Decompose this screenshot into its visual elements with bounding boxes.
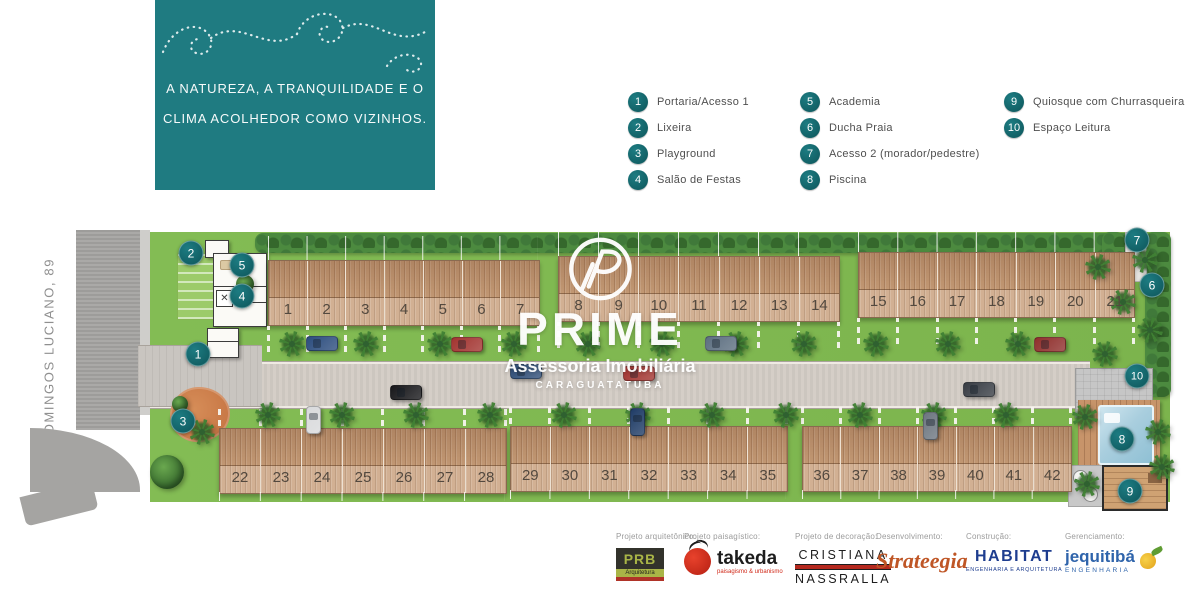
- unit-number: 17: [949, 293, 966, 310]
- car-windshield: [633, 415, 642, 422]
- palm-tree-icon: [863, 331, 889, 357]
- unit-number: 26: [396, 469, 413, 486]
- palm-tree-icon: [773, 402, 799, 428]
- unit-cell: 22: [220, 429, 260, 493]
- takeda-fruit-icon: [684, 548, 711, 575]
- unit-number: 24: [314, 469, 331, 486]
- takeda-name: takeda: [717, 549, 783, 568]
- partner-jequitiba: Gerenciamento: jequitibá ENGENHARIA: [1065, 532, 1156, 574]
- unit-cell: 26: [383, 429, 424, 493]
- prime-monogram-icon: [565, 234, 635, 304]
- car-icon: [1034, 337, 1066, 352]
- legend-number-badge: 6: [800, 118, 820, 138]
- partner-role: Desenvolvimento:: [876, 532, 968, 541]
- palm-tree-icon: [427, 331, 453, 357]
- parking-mark: [218, 404, 221, 426]
- unit-cell: 13: [759, 257, 799, 321]
- map-marker-10: 10: [1125, 364, 1150, 389]
- unit-cell: 36: [803, 427, 840, 491]
- parking-mark: [1132, 318, 1135, 344]
- unit-number: 22: [232, 469, 249, 486]
- lot-divider-lines: [510, 490, 786, 499]
- map-marker-1: 1: [186, 342, 211, 367]
- legend-label: Quiosque com Churrasqueira: [1033, 96, 1184, 108]
- palm-tree-icon: [1085, 254, 1111, 280]
- unit-number: 3: [361, 301, 369, 318]
- palm-tree-icon: [1092, 341, 1118, 367]
- unit-cell: 2: [307, 261, 346, 325]
- unit-cell: 1: [269, 261, 307, 325]
- palm-tree-icon: [255, 402, 281, 428]
- unit-cell: 29: [511, 427, 550, 491]
- unit-number: 34: [720, 467, 737, 484]
- car-windshield: [1041, 340, 1049, 349]
- unit-number: 6: [477, 301, 485, 318]
- car-windshield: [458, 340, 466, 349]
- parking-mark: [588, 402, 591, 424]
- map-marker-3: 3: [171, 409, 196, 434]
- unit-cell: 27: [424, 429, 465, 493]
- legend-item: 2Lixeira: [628, 118, 749, 138]
- prb-red-bar: [616, 577, 664, 581]
- palm-tree-icon: [403, 402, 429, 428]
- legend-number-badge: 2: [628, 118, 648, 138]
- unit-number: 27: [437, 469, 454, 486]
- unit-cell: 37: [840, 427, 878, 491]
- car-windshield: [712, 339, 720, 348]
- unit-number: 19: [1028, 293, 1045, 310]
- parking-mark: [839, 402, 842, 424]
- unit-cell: 17: [937, 253, 976, 317]
- parking-mark: [746, 402, 749, 424]
- unit-number: 18: [988, 293, 1005, 310]
- unit-cell: 12: [719, 257, 759, 321]
- unit-number: 38: [890, 467, 907, 484]
- parking-mark: [344, 326, 347, 352]
- partner-role: Construção:: [966, 532, 1062, 541]
- unit-number: 32: [641, 467, 658, 484]
- legend-label: Academia: [829, 96, 880, 108]
- legend-item: 8Piscina: [800, 170, 980, 190]
- palm-tree-icon: [847, 402, 873, 428]
- unit-cell: 14: [799, 257, 839, 321]
- parking-mark: [857, 318, 860, 344]
- legend-column-1: 1Portaria/Acesso 12Lixeira3Playground4Sa…: [628, 92, 749, 190]
- unit-number: 33: [680, 467, 697, 484]
- tree-icon: [150, 455, 184, 489]
- unit-cell: 35: [747, 427, 787, 491]
- parking-mark: [667, 402, 670, 424]
- legend-number-badge: 8: [800, 170, 820, 190]
- unit-cell: 34: [708, 427, 748, 491]
- parking-mark: [381, 404, 384, 426]
- car-windshield: [313, 339, 321, 348]
- unit-number: 21: [1106, 293, 1123, 310]
- car-windshield: [309, 413, 318, 420]
- legend-label: Acesso 2 (morador/pedestre): [829, 148, 980, 160]
- unit-number: 35: [759, 467, 776, 484]
- parking-mark: [757, 322, 760, 348]
- car-icon: [306, 336, 338, 351]
- unit-block-5: 29303132333435: [510, 426, 788, 492]
- parking-mark: [509, 402, 512, 424]
- map-marker-7: 7: [1125, 228, 1150, 253]
- unit-number: 5: [439, 301, 447, 318]
- car-windshield: [397, 388, 405, 397]
- unit-number: 42: [1044, 467, 1061, 484]
- parking-mark: [463, 404, 466, 426]
- legend-item: 10Espaço Leitura: [1004, 118, 1184, 138]
- legend-column-2: 5Academia6Ducha Praia7Acesso 2 (morador/…: [800, 92, 980, 190]
- unit-cell: 33: [668, 427, 708, 491]
- parking-mark: [504, 404, 507, 426]
- car-windshield: [926, 419, 935, 426]
- legend-item: 4Salão de Festas: [628, 170, 749, 190]
- palm-tree-icon: [1137, 317, 1163, 343]
- watermark-brand: PRIME: [517, 306, 683, 352]
- prb-sub: Arquitetura: [616, 569, 664, 577]
- unit-cell: 4: [384, 261, 423, 325]
- palm-tree-icon: [993, 402, 1019, 428]
- partner-takeda: Projeto paisagístico: takeda paisagismo …: [684, 532, 783, 575]
- legend-number-badge: 4: [628, 170, 648, 190]
- car-icon: [451, 337, 483, 352]
- map-marker-5: 5: [230, 253, 255, 278]
- legend-item: 7Acesso 2 (morador/pedestre): [800, 144, 980, 164]
- jequitiba-name: jequitibá: [1065, 548, 1135, 565]
- unit-cell: 32: [629, 427, 669, 491]
- street-road: [76, 230, 140, 430]
- unit-number: 31: [601, 467, 618, 484]
- takeda-sub: paisagismo & urbanismo: [717, 569, 783, 575]
- partner-strateegia: Desenvolvimento: Strateegia: [876, 532, 968, 574]
- palm-tree-icon: [353, 331, 379, 357]
- palm-tree-icon: [279, 331, 305, 357]
- partner-role: Gerenciamento:: [1065, 532, 1156, 541]
- watermark-logo: PRIME Assessoria Imobiliária CARAGUATATU…: [504, 234, 695, 391]
- car-icon: [630, 408, 645, 436]
- unit-cell: 3: [345, 261, 384, 325]
- tagline-line2: CLIMA ACOLHEDOR COMO VIZINHOS.: [155, 104, 435, 134]
- unit-number: 41: [1005, 467, 1022, 484]
- legend-item: 1Portaria/Acesso 1: [628, 92, 749, 112]
- unit-cell: 19: [1016, 253, 1055, 317]
- map-marker-8: 8: [1110, 427, 1135, 452]
- legend-number-badge: 7: [800, 144, 820, 164]
- legend-number-badge: 1: [628, 92, 648, 112]
- parking-mark: [1031, 402, 1034, 424]
- car-icon: [390, 385, 422, 400]
- prb-logo: PRB Arquitetura: [616, 548, 664, 581]
- unit-number: 15: [870, 293, 887, 310]
- unit-cell: 6: [462, 261, 501, 325]
- car-icon: [705, 336, 737, 351]
- palm-tree-icon: [329, 402, 355, 428]
- palm-tree-icon: [1005, 331, 1031, 357]
- unit-cell: 15: [859, 253, 897, 317]
- legend-label: Ducha Praia: [829, 122, 893, 134]
- unit-number: 13: [771, 297, 788, 314]
- legend-column-3: 9Quiosque com Churrasqueira10Espaço Leit…: [1004, 92, 1184, 138]
- unit-number: 16: [909, 293, 926, 310]
- prb-name: PRB: [616, 551, 664, 567]
- palm-tree-icon: [551, 402, 577, 428]
- parking-mark: [421, 326, 424, 352]
- legend-label: Playground: [657, 148, 716, 160]
- unit-number: 30: [562, 467, 579, 484]
- palm-tree-icon: [791, 331, 817, 357]
- strateegia-name: Strateegia: [876, 548, 968, 574]
- car-icon: [923, 412, 938, 440]
- parking-mark: [896, 318, 899, 344]
- legend-label: Salão de Festas: [657, 174, 741, 186]
- lot-divider-lines: [268, 236, 538, 260]
- portaria-building: [207, 328, 239, 358]
- unit-cell: 5: [423, 261, 462, 325]
- legend-number-badge: 10: [1004, 118, 1024, 138]
- lot-divider-lines: [802, 490, 1070, 499]
- legend-item: 6Ducha Praia: [800, 118, 980, 138]
- jequitiba-sub: ENGENHARIA: [1065, 567, 1135, 574]
- legend-item: 3Playground: [628, 144, 749, 164]
- lot-divider-lines: [219, 492, 505, 501]
- unit-cell: 25: [342, 429, 383, 493]
- parking-mark: [837, 322, 840, 348]
- unit-number: 14: [811, 297, 828, 314]
- map-marker-2: 2: [179, 241, 204, 266]
- map-marker-4: 4: [230, 284, 255, 309]
- map-marker-6: 6: [1140, 273, 1165, 298]
- unit-cell: 41: [994, 427, 1032, 491]
- lot-divider-lines: [858, 228, 1133, 252]
- unit-cell: 28: [465, 429, 506, 493]
- partner-habitat: Construção: HABITAT ENGENHARIA E ARQUITE…: [966, 532, 1062, 573]
- legend-number-badge: 9: [1004, 92, 1024, 112]
- palm-tree-icon: [699, 402, 725, 428]
- parking-mark: [383, 326, 386, 352]
- palm-tree-icon: [1072, 404, 1098, 430]
- unit-number: 28: [478, 469, 495, 486]
- map-marker-9: 9: [1118, 479, 1143, 504]
- legend-label: Piscina: [829, 174, 867, 186]
- parking-mark: [954, 402, 957, 424]
- masterplan-page: A NATUREZA, A TRANQUILIDADE E O CLIMA AC…: [0, 0, 1200, 600]
- unit-cell: 30: [550, 427, 590, 491]
- legend-item: 9Quiosque com Churrasqueira: [1004, 92, 1184, 112]
- tagline-line1: A NATUREZA, A TRANQUILIDADE E O: [155, 74, 435, 104]
- unit-number: 2: [322, 301, 330, 318]
- unit-number: 37: [852, 467, 869, 484]
- parking-mark: [916, 402, 919, 424]
- parking-mark: [878, 402, 881, 424]
- jequitiba-fruit-icon: [1140, 553, 1156, 569]
- parking-mark: [801, 402, 804, 424]
- watermark-city: CARAGUATATUBA: [536, 380, 665, 391]
- legend-number-badge: 5: [800, 92, 820, 112]
- palm-tree-icon: [1074, 471, 1100, 497]
- palm-tree-icon: [477, 402, 503, 428]
- palm-tree-icon: [1145, 419, 1171, 445]
- unit-number: 36: [813, 467, 830, 484]
- habitat-name: HABITAT: [966, 548, 1062, 566]
- parking-mark: [1093, 318, 1096, 344]
- unit-cell: 31: [589, 427, 629, 491]
- unit-number: 12: [731, 297, 748, 314]
- unit-cell: 23: [260, 429, 301, 493]
- habitat-sub: ENGENHARIA E ARQUITETURA: [966, 567, 1062, 573]
- unit-cell: 42: [1033, 427, 1071, 491]
- unit-number: 39: [929, 467, 946, 484]
- parking-mark: [300, 404, 303, 426]
- legend-label: Portaria/Acesso 1: [657, 96, 749, 108]
- unit-cell: 40: [956, 427, 994, 491]
- unit-number: 40: [967, 467, 984, 484]
- car-windshield: [970, 385, 978, 394]
- unit-block-1: 1234567: [268, 260, 540, 326]
- car-icon: [963, 382, 995, 397]
- unit-number: 1: [284, 301, 292, 318]
- car-icon: [306, 406, 321, 434]
- unit-number: 20: [1067, 293, 1084, 310]
- brand-tagline-box: A NATUREZA, A TRANQUILIDADE E O CLIMA AC…: [155, 0, 435, 190]
- unit-block-4: 22232425262728: [219, 428, 507, 494]
- unit-cell: 18: [976, 253, 1015, 317]
- parking-mark: [267, 326, 270, 352]
- tagline: A NATUREZA, A TRANQUILIDADE E O CLIMA AC…: [155, 74, 435, 134]
- legend-number-badge: 3: [628, 144, 648, 164]
- unit-cell: 24: [301, 429, 342, 493]
- cristiana-line2: NASSRALLA: [795, 572, 891, 586]
- legend-label: Espaço Leitura: [1033, 122, 1111, 134]
- legend-item: 5Academia: [800, 92, 980, 112]
- unit-cell: 16: [897, 253, 936, 317]
- unit-number: 23: [273, 469, 290, 486]
- palm-tree-icon: [1149, 454, 1175, 480]
- swirl-decoration-icon: [155, 4, 435, 74]
- palm-tree-icon: [935, 331, 961, 357]
- unit-number: 4: [400, 301, 408, 318]
- unit-number: 29: [522, 467, 539, 484]
- unit-cell: 38: [879, 427, 917, 491]
- unit-number: 25: [355, 469, 372, 486]
- legend-label: Lixeira: [657, 122, 692, 134]
- watermark-subtitle: Assessoria Imobiliária: [504, 356, 695, 377]
- parking-mark: [975, 318, 978, 344]
